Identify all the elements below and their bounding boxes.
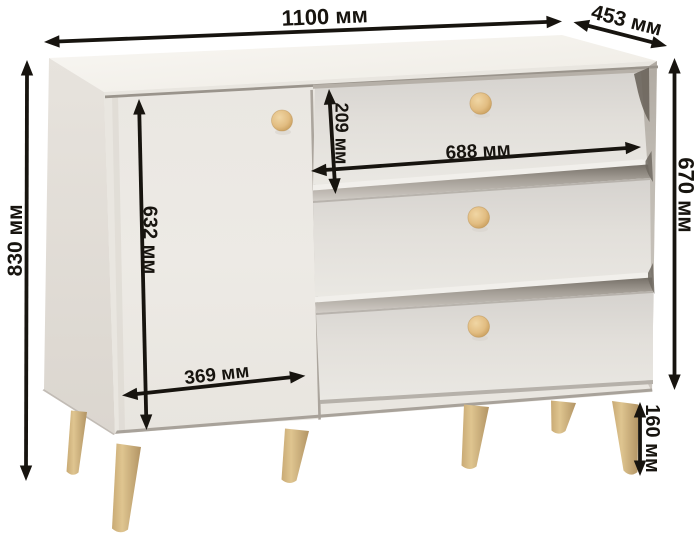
svg-text:209 мм: 209 мм bbox=[332, 103, 352, 165]
svg-text:670 мм: 670 мм bbox=[674, 157, 699, 232]
svg-text:632 мм: 632 мм bbox=[139, 206, 161, 275]
svg-text:830 мм: 830 мм bbox=[4, 204, 27, 276]
svg-text:1100 мм: 1100 мм bbox=[281, 2, 368, 31]
svg-text:688 мм: 688 мм bbox=[445, 139, 511, 164]
svg-text:160 мм: 160 мм bbox=[641, 404, 663, 473]
